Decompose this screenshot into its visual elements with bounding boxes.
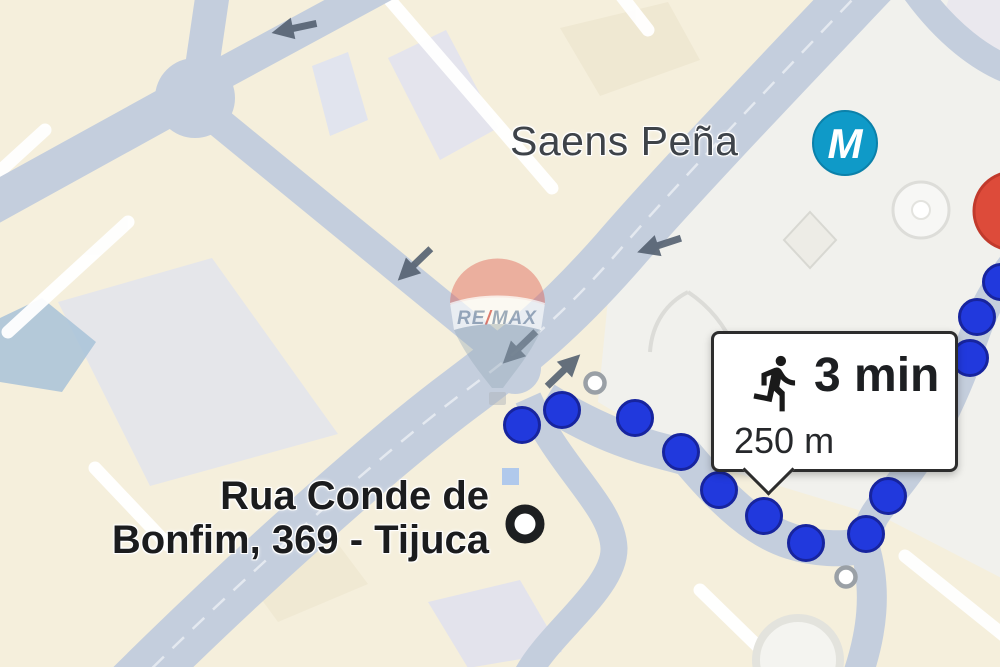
route-dot [789, 526, 824, 561]
destination-address-line1: Rua Conde de [0, 474, 489, 518]
walking-route-tooltip[interactable]: 3 min 250 m [711, 331, 958, 472]
route-dot [702, 473, 737, 508]
route-dot [664, 435, 699, 470]
walking-person-icon [746, 350, 808, 416]
destination-circle[interactable] [510, 509, 540, 539]
balloon-basket [489, 392, 506, 405]
route-dot [871, 479, 906, 514]
route-dot [960, 300, 995, 335]
route-endpoint-dot [837, 568, 856, 587]
destination-address-label: Rua Conde de Bonfim, 369 - Tijuca [0, 474, 489, 562]
tooltip-duration: 3 min [814, 348, 939, 403]
route-endpoint-dot [586, 374, 605, 393]
route-dot [849, 517, 884, 552]
route-dot [618, 401, 653, 436]
metro-m-glyph: M [828, 120, 864, 167]
route-dot [747, 499, 782, 534]
remax-watermark-text: RE/MAX [457, 308, 537, 329]
tooltip-distance: 250 m [734, 420, 834, 462]
station-label: Saens Peña [510, 118, 738, 165]
plaza-circle [756, 618, 840, 667]
blue-poi-square [502, 468, 519, 485]
route-dot [545, 393, 580, 428]
map-screenshot: { "labels": { "station": "Saens Peña", "… [0, 0, 1000, 667]
metro-station-icon[interactable]: M [813, 111, 877, 175]
destination-marker[interactable] [510, 509, 540, 539]
destination-address-line2: Bonfim, 369 - Tijuca [0, 518, 489, 562]
intersection-nw [155, 58, 235, 138]
route-dot [505, 408, 540, 443]
